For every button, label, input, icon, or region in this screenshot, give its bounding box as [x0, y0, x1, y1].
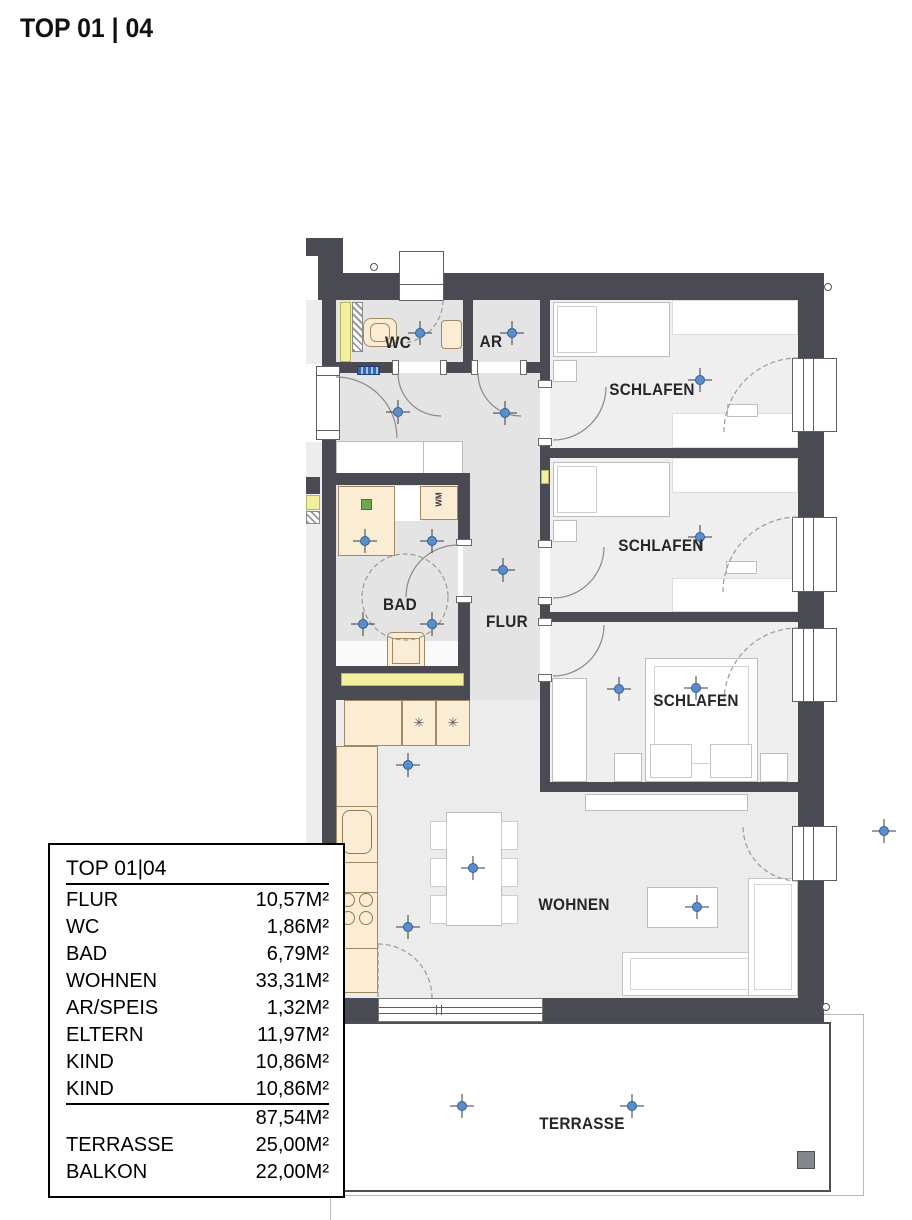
wall-left [322, 300, 336, 366]
dining-chair [501, 858, 518, 887]
legend-value: 10,86M² [256, 1076, 329, 1103]
shelf-2 [726, 561, 757, 574]
page-title: TOP 01 | 04 [20, 13, 153, 44]
wall-right [798, 702, 824, 826]
sofa-seat-v [754, 884, 792, 990]
legend-label: BAD [66, 941, 107, 968]
wall [318, 256, 343, 300]
nightstand-3a [614, 753, 642, 782]
dining-chair [430, 858, 447, 887]
wardrobe-zone [672, 458, 798, 493]
legend-row: AR/SPEIS1,32M² [66, 995, 329, 1022]
room-label-schlafen1: SCHLAFEN [609, 380, 694, 400]
legend-value: 33,31M² [256, 968, 329, 995]
dining-chair [430, 821, 447, 850]
kitchen-sink [342, 810, 372, 854]
legend-value: 22,00M² [256, 1159, 329, 1186]
window-wohnen [792, 826, 837, 881]
room-label-terrasse: TERRASSE [539, 1114, 624, 1134]
washing-machine-label: WM [435, 492, 444, 506]
vestibule-floor [336, 373, 540, 441]
marker-circle [824, 283, 832, 291]
legend-row: BALKON22,00M² [66, 1159, 329, 1186]
bad-toilet-seat [392, 638, 420, 664]
door-jamb [538, 438, 552, 446]
legend-label: AR/SPEIS [66, 995, 158, 1022]
bad-shelf [395, 486, 421, 521]
legend-value: 6,79M² [267, 941, 329, 968]
legend-row: TERRASSE25,00M² [66, 1132, 329, 1159]
room-label-wc: WC [385, 333, 411, 353]
door-jamb [520, 360, 527, 375]
legend-row: WOHNEN33,31M² [66, 968, 329, 995]
dining-table [446, 812, 502, 926]
door-jamb [440, 360, 447, 375]
door-jamb [538, 597, 552, 605]
insulation-strip [340, 302, 351, 362]
wall-bottom [543, 998, 824, 1022]
ceiling-light-icon [872, 819, 896, 843]
legend-row-total: 87,54M² [66, 1105, 329, 1132]
legend-row: WC1,86M² [66, 914, 329, 941]
door-jamb [538, 618, 552, 626]
legend-value: 87,54M² [256, 1105, 329, 1132]
vanity [338, 486, 395, 556]
legend-row-subtotal: KIND10,86M² [66, 1076, 329, 1105]
wall-room1-2 [550, 448, 798, 458]
floorplan-page: TOP 01 | 04 [0, 0, 912, 1220]
nightstand-1 [553, 360, 577, 382]
legend-value: 25,00M² [256, 1132, 329, 1159]
wall-wc-ar [463, 300, 473, 362]
legend-label: KIND [66, 1076, 114, 1103]
wardrobe-zone [672, 300, 798, 335]
room-label-wohnen: WOHNEN [538, 895, 609, 915]
stove-burner [359, 893, 373, 907]
window-schlafen1 [792, 358, 837, 432]
top-door [399, 251, 444, 301]
legend-value: 10,86M² [256, 1049, 329, 1076]
legend-label: TERRASSE [66, 1132, 174, 1159]
door-jamb [471, 360, 478, 375]
exterior-block [306, 477, 320, 494]
tv-sideboard [585, 794, 748, 811]
legend-row: KIND10,86M² [66, 1049, 329, 1076]
wall-corridor [540, 675, 550, 792]
vanity-sink-marker [361, 499, 372, 510]
legend-value: 1,86M² [267, 914, 329, 941]
legend-title: TOP 01|04 [66, 855, 329, 885]
nightstand-2 [553, 520, 577, 542]
legend-label: FLUR [66, 887, 118, 914]
door-jamb [538, 540, 552, 548]
door-jamb [538, 674, 552, 682]
exterior-insulation [306, 495, 320, 510]
wardrobe-3 [552, 678, 587, 782]
legend-value: 10,57M² [256, 887, 329, 914]
legend-row: ELTERN11,97M² [66, 1022, 329, 1049]
wardrobe-zone [672, 578, 798, 612]
legend-value: 1,32M² [267, 995, 329, 1022]
kitchen-upper-cabinet [344, 700, 402, 746]
wall-room2-3 [550, 612, 798, 622]
closet [336, 441, 463, 474]
wardrobe-zone [672, 413, 798, 448]
bed-pillow-1 [557, 306, 597, 353]
marker-circle [822, 1003, 830, 1011]
freezer-icon: ✳ [448, 715, 459, 731]
stove-burner [359, 911, 373, 925]
ar-floor [473, 300, 540, 362]
wall-top [443, 273, 824, 300]
door-jamb [538, 380, 552, 388]
legend-label: WC [66, 914, 99, 941]
flur-floor [463, 441, 540, 700]
coffee-table [647, 887, 718, 928]
freezer-icon: ✳ [414, 715, 425, 731]
dining-chair [501, 895, 518, 924]
washbasin [441, 320, 462, 349]
legend-label: ELTERN [66, 1022, 143, 1049]
wall [306, 238, 343, 256]
door-jamb [392, 360, 399, 375]
marker-circle [370, 263, 378, 271]
legend-value: 11,97M² [257, 1022, 329, 1049]
terrace-drain [797, 1151, 815, 1169]
wall-bad-flur [458, 473, 470, 545]
legend-label: WOHNEN [66, 968, 157, 995]
shelf-1 [727, 404, 758, 417]
nightstand-3b [760, 753, 788, 782]
wall-top-left [343, 273, 400, 300]
wall-right [798, 432, 824, 517]
electric-panel [357, 366, 380, 375]
bed-pillow-2 [557, 466, 597, 513]
window-schlafen2 [792, 517, 837, 592]
exterior-hatch [306, 511, 320, 524]
room-label-schlafen3: SCHLAFEN [653, 691, 738, 711]
dining-chair [430, 895, 447, 924]
wall-room3-wohnen [550, 782, 798, 792]
bed-pillow-left [650, 744, 692, 778]
closet-divider [423, 441, 424, 474]
legend-row: FLUR10,57M² [66, 887, 329, 914]
room-label-schlafen2: SCHLAFEN [618, 536, 703, 556]
door-jamb [456, 539, 472, 546]
counter-divider [336, 806, 378, 807]
bad-insulation [341, 673, 464, 686]
room-label-ar: AR [480, 332, 503, 352]
wall-corridor [540, 440, 550, 547]
insulation-strip [541, 470, 549, 484]
door-jamb [456, 596, 472, 603]
wall-corridor [540, 300, 550, 387]
terrace [337, 1022, 831, 1192]
legend-label: KIND [66, 1049, 114, 1076]
area-legend: TOP 01|04 FLUR10,57M² WC1,86M² BAD6,79M²… [48, 843, 345, 1198]
bed-pillow-right [710, 744, 752, 778]
window-schlafen3 [792, 628, 837, 702]
legend-row: BAD6,79M² [66, 941, 329, 968]
wall-bad-top [336, 473, 470, 485]
wall-right [798, 300, 824, 358]
dining-chair [501, 821, 518, 850]
legend-label: BALKON [66, 1159, 147, 1186]
room-label-flur: FLUR [486, 612, 528, 632]
terrace-sliding-door [378, 998, 543, 1022]
shaft-hatch [352, 302, 363, 352]
entry-door [316, 366, 340, 440]
room-label-bad: BAD [383, 595, 417, 615]
wall-right [798, 592, 824, 628]
